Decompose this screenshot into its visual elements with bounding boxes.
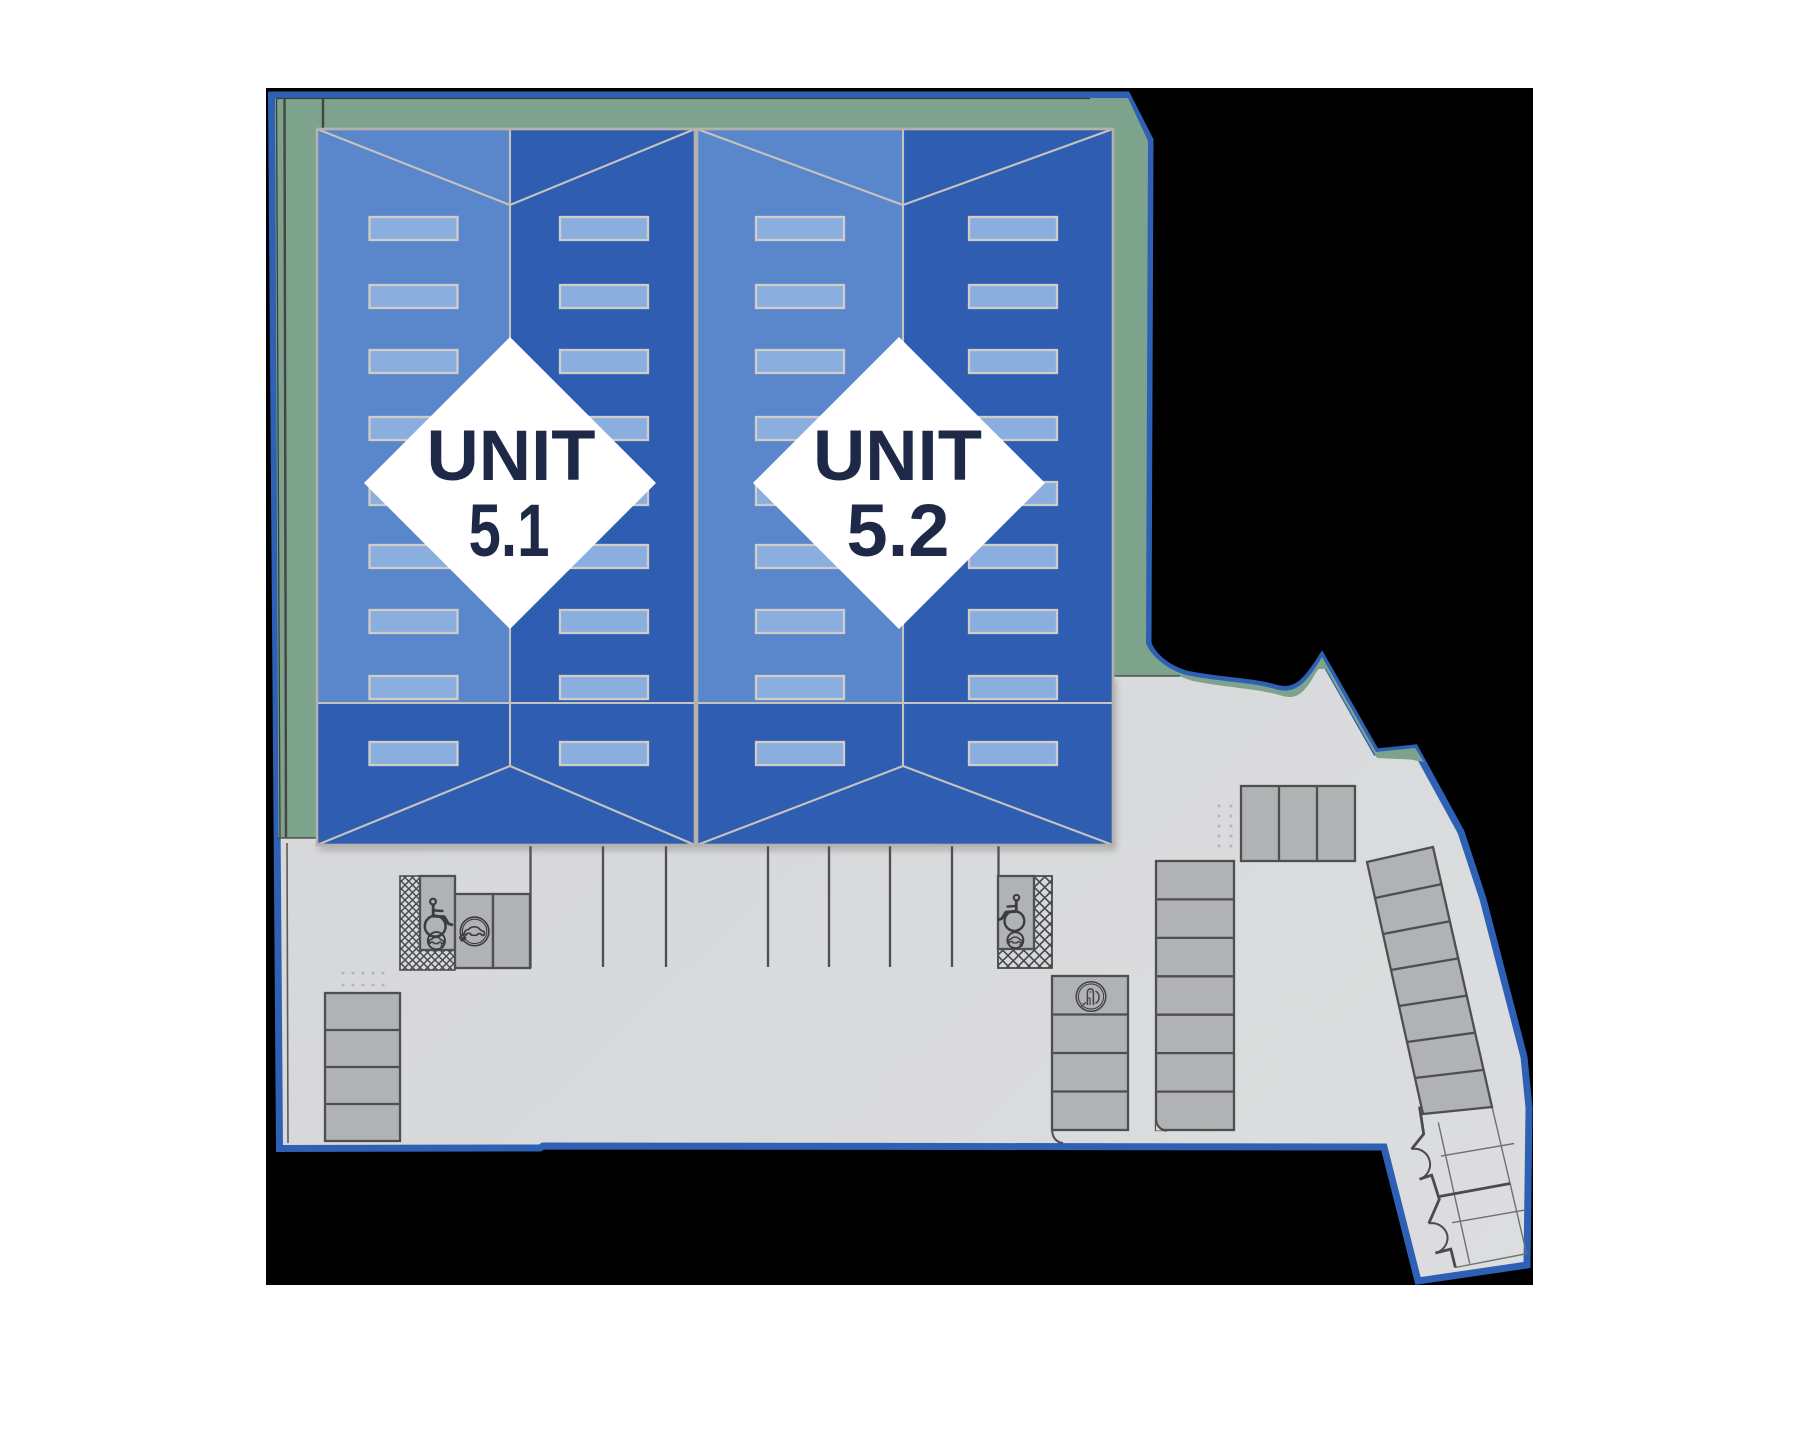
- svg-text:5.2: 5.2: [847, 489, 950, 572]
- svg-text:5.1: 5.1: [469, 489, 550, 572]
- svg-text:UNIT: UNIT: [813, 417, 982, 496]
- svg-text:UNIT: UNIT: [427, 417, 596, 496]
